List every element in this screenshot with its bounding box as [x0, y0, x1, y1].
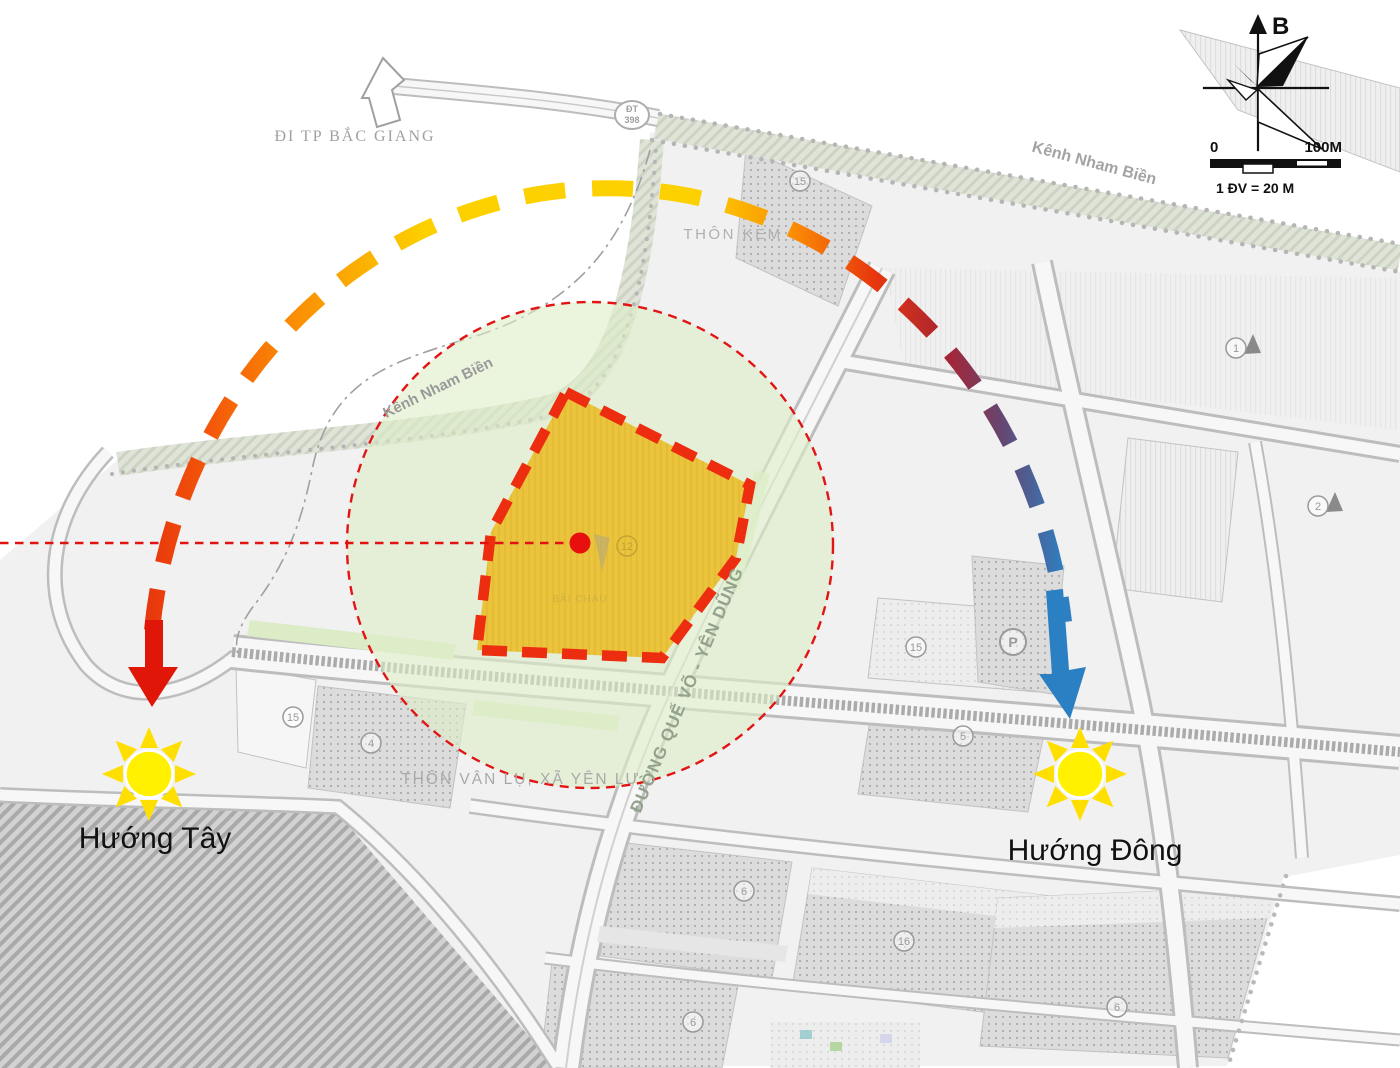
scale-end-label: 100M — [1304, 139, 1342, 156]
svg-text:4: 4 — [368, 738, 374, 750]
svg-text:5: 5 — [960, 731, 966, 743]
east-direction-label: Hướng Đông — [1008, 834, 1183, 867]
route-badge-line2: 398 — [624, 115, 639, 125]
svg-text:15: 15 — [794, 176, 806, 188]
site-faint-label: BÃI CHÁU — [552, 592, 607, 605]
parcel-badge: 15 — [790, 171, 810, 191]
svg-text:6: 6 — [1114, 1002, 1120, 1014]
route-badge-line1: ĐT — [626, 104, 638, 114]
parcel-badge: 6 — [683, 1012, 703, 1032]
map-svg: ĐT 398 BÃI CHÁU ĐI TP BẮC GIANG Kênh Nha… — [0, 0, 1400, 1068]
scale-start-label: 0 — [1210, 139, 1218, 156]
svg-text:16: 16 — [898, 936, 910, 948]
svg-text:2: 2 — [1315, 501, 1321, 513]
svg-text:6: 6 — [690, 1017, 696, 1029]
sun-path-analysis-map: ĐT 398 BÃI CHÁU ĐI TP BẮC GIANG Kênh Nha… — [0, 0, 1400, 1068]
hamlet-label-north: THÔN KEM — [683, 226, 782, 243]
exit-road-label: ĐI TP BẮC GIANG — [274, 126, 435, 145]
parcel-badge: 4 — [361, 733, 381, 753]
scale-unit-label: 1 ĐV = 20 M — [1216, 180, 1294, 196]
svg-text:12: 12 — [621, 541, 633, 553]
compass-north-label: B — [1272, 13, 1289, 40]
parcel-badge: 5 — [953, 726, 973, 746]
east-sun-icon — [1033, 727, 1127, 821]
west-sun-icon — [102, 727, 196, 821]
parcel-badge: 6 — [1107, 997, 1127, 1017]
parking-badge: P — [1000, 629, 1026, 655]
svg-text:15: 15 — [287, 712, 299, 724]
hamlet-label-south: THÔN VÂN LỤ, XÃ YÊN LƯ — [401, 771, 641, 788]
west-direction-label: Hướng Tây — [79, 822, 232, 855]
site-center-dot — [570, 533, 591, 554]
parcel-badge: 15 — [906, 637, 926, 657]
svg-text:6: 6 — [741, 886, 747, 898]
parcel-badge: 15 — [283, 707, 303, 727]
svg-text:1: 1 — [1233, 343, 1239, 355]
svg-text:15: 15 — [910, 642, 922, 654]
svg-text:P: P — [1008, 634, 1017, 650]
parcel-badge: 6 — [734, 881, 754, 901]
parcel-badge: 16 — [894, 931, 914, 951]
